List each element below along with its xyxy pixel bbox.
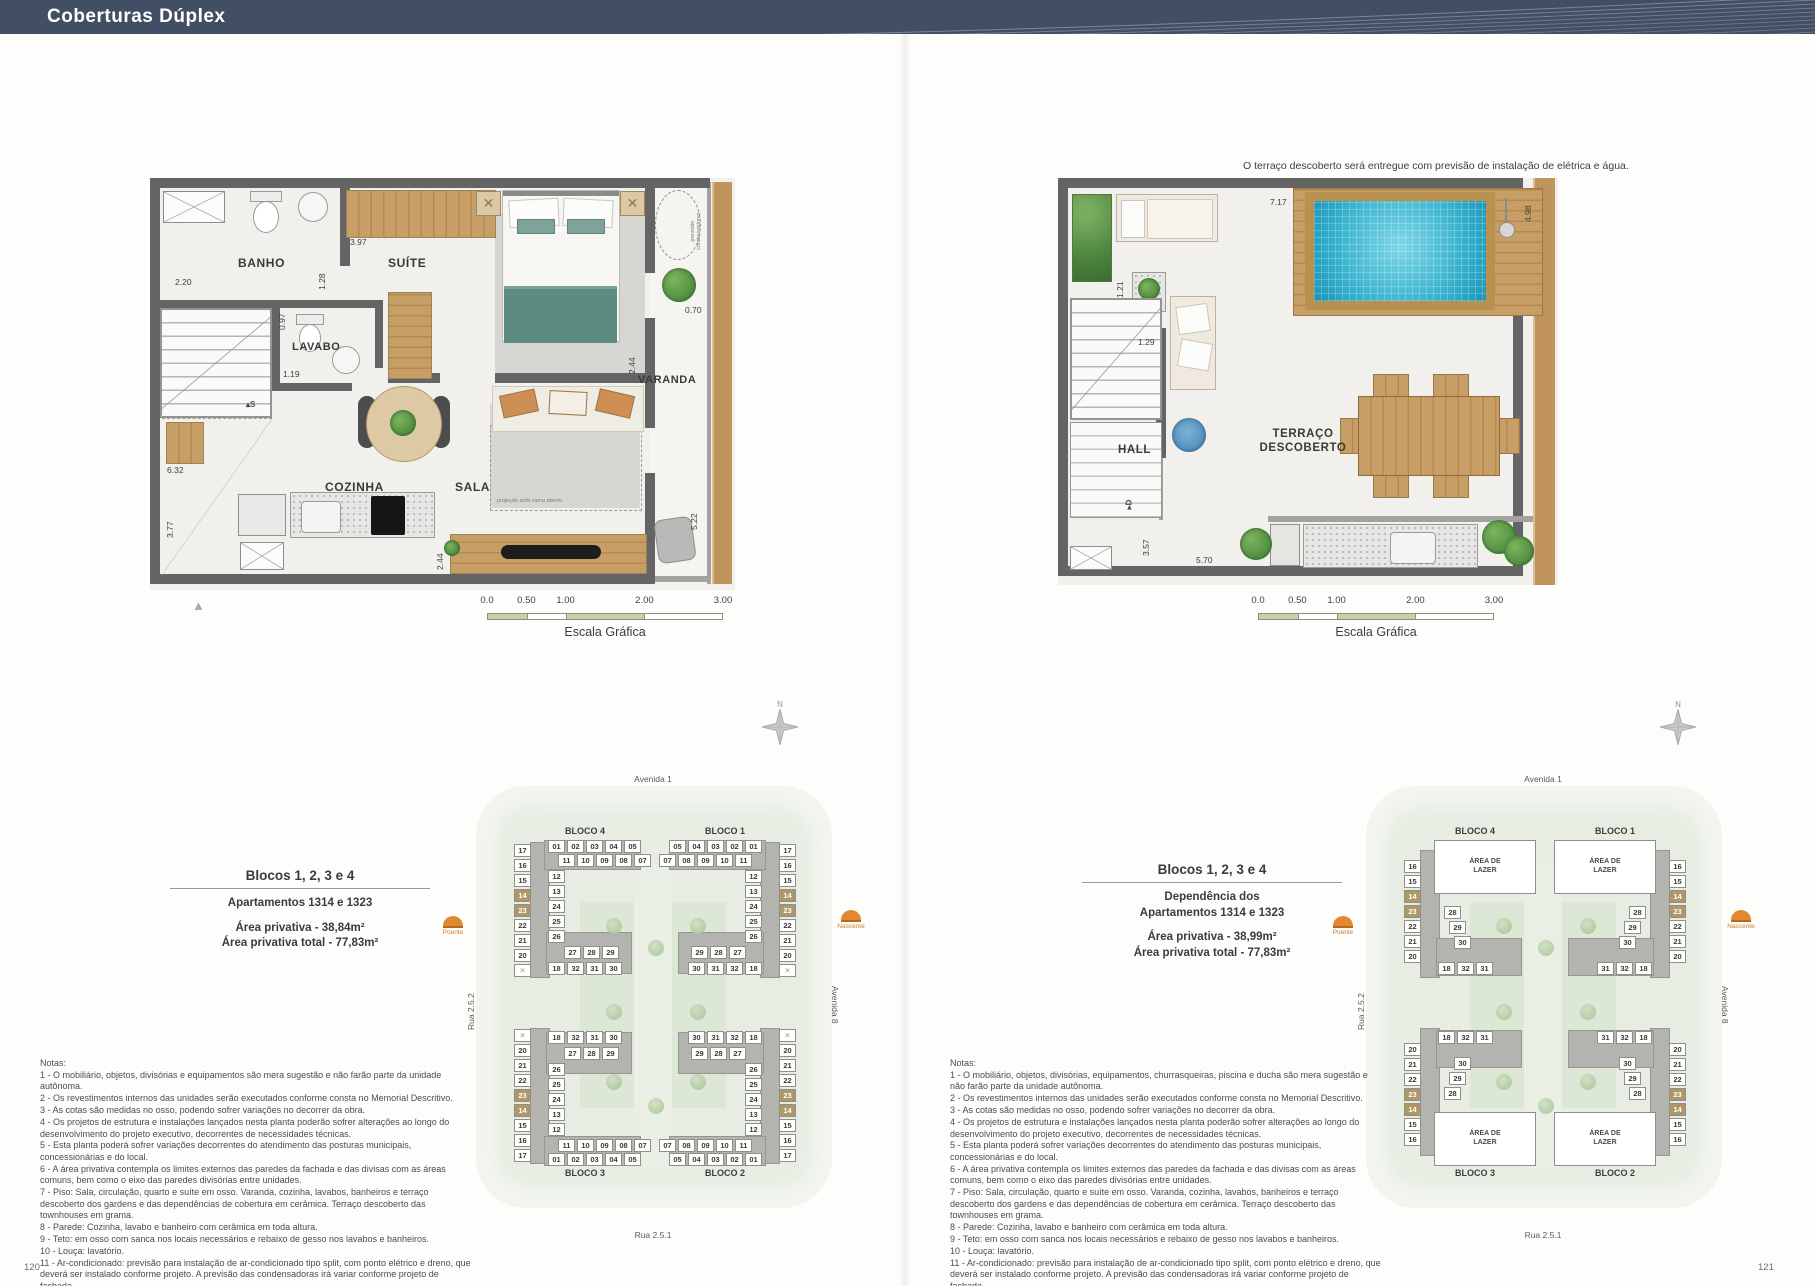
unit-31: 31 [1476, 1031, 1493, 1044]
unit-08: 08 [615, 1139, 632, 1152]
unit-11: 11 [735, 1139, 752, 1152]
street-label-left: Rua 2.5.2 [1356, 993, 1366, 1030]
bloco-4-building: ÁREA DE LAZER16151423222120282930183231 [1404, 840, 1546, 982]
shower-post-icon [1505, 198, 1507, 224]
unit-09: 09 [596, 1139, 613, 1152]
wall-left [150, 178, 160, 584]
unit-03: 03 [707, 840, 724, 853]
plant-icon [1138, 278, 1160, 300]
unit-13: 13 [548, 885, 565, 898]
unit-09: 09 [697, 854, 714, 867]
sunset-icon: Poente [1328, 916, 1358, 936]
unit-22: 22 [1404, 1073, 1421, 1086]
unit-30: 30 [1619, 936, 1636, 949]
unit-23: 23 [779, 1089, 796, 1102]
scale-tick: 3.00 [714, 595, 733, 606]
unit-24: 24 [745, 1093, 762, 1106]
street-label-right: Avenida 8 [1720, 986, 1730, 1024]
unit-18: 18 [548, 1031, 565, 1044]
scale-tick: 1.00 [556, 595, 575, 606]
unit-30: 30 [1454, 936, 1471, 949]
unit-18: 18 [1635, 962, 1652, 975]
wave-decoration [0, 0, 1815, 34]
unit-15: 15 [514, 1119, 531, 1132]
unit-14: 14 [1404, 1103, 1421, 1116]
unit-29: 29 [1624, 1072, 1641, 1085]
tree-icon [1538, 1098, 1554, 1114]
note-item: 10 - Louça: lavatório. [950, 1246, 1382, 1257]
room-label-varanda: VARANDA [638, 374, 696, 386]
note-item: 5 - Esta planta poderá sofrer variações … [950, 1140, 1382, 1163]
unit-14: 14 [514, 1104, 531, 1117]
scale-bar-caption: Escala Gráfica [1258, 625, 1494, 639]
unit-15: 15 [1404, 875, 1421, 888]
facade-strip [712, 182, 732, 584]
unit-cross: ✕ [779, 1029, 796, 1042]
ac-unit-icon: ✕ [620, 191, 645, 216]
dim: 3.57 [1142, 539, 1151, 556]
dim: 3.97 [350, 238, 367, 247]
info-line: Área privativa - 38,99m² [1082, 930, 1342, 946]
cooktop-icon [371, 496, 405, 535]
notes-right: Notas: 1 - O mobiliário, objetos, divisó… [950, 1058, 1382, 1286]
tree-icon [648, 1098, 664, 1114]
scale-bar: 0.00.501.002.003.00Escala Gráfica [487, 595, 723, 641]
dim: 2.20 [175, 278, 192, 287]
dim: 3.77 [166, 521, 175, 538]
unit-18: 18 [548, 962, 565, 975]
unit-13: 13 [548, 1108, 565, 1121]
street-label-bottom: Rua 2.5.1 [1348, 1230, 1738, 1240]
note-item: 2 - Os revestimentos internos das unidad… [40, 1093, 472, 1104]
scale-tick: 1.00 [1327, 595, 1346, 606]
dim: 4.98 [1524, 205, 1533, 222]
unit-11: 11 [735, 854, 752, 867]
unit-22: 22 [1669, 1073, 1686, 1086]
unit-28: 28 [583, 946, 600, 959]
unit-27: 27 [729, 946, 746, 959]
unit-15: 15 [514, 874, 531, 887]
scale-bar-caption: Escala Gráfica [487, 625, 723, 639]
info-line: Apartamentos 1314 e 1323 [1082, 906, 1342, 922]
unit-31: 31 [1597, 1031, 1614, 1044]
unit-14: 14 [779, 889, 796, 902]
tree-icon [1580, 918, 1596, 934]
unit-25: 25 [745, 1078, 762, 1091]
unit-info-right: Blocos 1, 2, 3 e 4 Dependência dos Apart… [1082, 862, 1342, 961]
scale-tick: 0.50 [517, 595, 536, 606]
unit-13: 13 [745, 1108, 762, 1121]
sunrise-icon: Nascente [836, 910, 866, 930]
room-label-suite: SUÍTE [388, 256, 426, 270]
unit-20: 20 [1669, 950, 1686, 963]
brochure-spread: Coberturas Dúplex ✕ ✕ [0, 0, 1815, 1286]
info-line: Apartamentos 1314 e 1323 [170, 896, 430, 912]
note-item: 7 - Piso: Sala, circulação, quarto e suí… [950, 1187, 1382, 1221]
bloco-label: BLOCO 1 [1544, 826, 1686, 836]
note-item: 4 - Os projetos de estrutura e instalaçõ… [950, 1117, 1382, 1140]
note-item: 11 - Ar-condicionado: previsão para inst… [40, 1258, 472, 1286]
unit-30: 30 [688, 962, 705, 975]
unit-20: 20 [1404, 950, 1421, 963]
note-item: 3 - As cotas são medidas no osso, podend… [40, 1105, 472, 1116]
unit-02: 02 [726, 1153, 743, 1166]
tree-icon [606, 1074, 622, 1090]
unit-20: 20 [779, 949, 796, 962]
info-line: Área privativa total - 77,83m² [170, 936, 430, 952]
unit-24: 24 [745, 900, 762, 913]
unit-07: 07 [634, 854, 651, 867]
unit-28: 28 [1629, 906, 1646, 919]
note-item: 8 - Parede: Cozinha, lavabo e banheiro c… [950, 1222, 1382, 1233]
tree-icon [1538, 940, 1554, 956]
bloco-4-building: 1716151423222120✕01020304051110090807121… [514, 840, 656, 982]
unit-08: 08 [615, 854, 632, 867]
unit-cross: ✕ [514, 964, 531, 977]
room-label-hall: HALL [1118, 444, 1151, 456]
room-label-sala: SALA [455, 480, 490, 494]
dim: 7.17 [1270, 198, 1287, 207]
tree-icon [1580, 1074, 1596, 1090]
wall-divider-2 [495, 373, 650, 383]
unit-18: 18 [745, 1031, 762, 1044]
unit-31: 31 [586, 1031, 603, 1044]
unit-22: 22 [514, 1074, 531, 1087]
room-label-terraco-2: DESCOBERTO [1241, 442, 1365, 454]
varanda-rail [707, 182, 711, 584]
unit-17: 17 [514, 1149, 531, 1162]
unit-20: 20 [779, 1044, 796, 1057]
unit-17: 17 [779, 844, 796, 857]
unit-24: 24 [548, 1093, 565, 1106]
unit-25: 25 [745, 915, 762, 928]
dim: 5.70 [1196, 556, 1213, 565]
tv-bench-icon [450, 534, 647, 574]
street-label-left: Rua 2.5.2 [466, 993, 476, 1030]
unit-10: 10 [577, 1139, 594, 1152]
bloco-2-building: ÁREA DE LAZER16151423222120282930183231 [1544, 1024, 1686, 1166]
info-line: Dependência dos [1082, 890, 1342, 906]
wardrobe-icon [346, 190, 496, 238]
tree-icon [690, 1004, 706, 1020]
dim: 2.44 [628, 357, 637, 374]
bloco-label: BLOCO 3 [1404, 1168, 1546, 1178]
scale-tick: 3.00 [1485, 595, 1504, 606]
note-item: 3 - As cotas são medidas no osso, podend… [950, 1105, 1382, 1116]
wall-bottom [150, 574, 655, 584]
area-de-lazer: ÁREA DE LAZER [1434, 840, 1536, 894]
unit-01: 01 [548, 1153, 565, 1166]
dim: 6.32 [167, 466, 184, 475]
fridge-icon [238, 494, 286, 536]
unit-22: 22 [514, 919, 531, 932]
unit-29: 29 [691, 946, 708, 959]
note-item: 9 - Teto: em osso com sanca nos locais n… [950, 1234, 1382, 1245]
sofa-icon [492, 386, 644, 432]
unit-20: 20 [514, 1044, 531, 1057]
note-item: 5 - Esta planta poderá sofrer variações … [40, 1140, 472, 1163]
unit-29: 29 [691, 1047, 708, 1060]
unit-28: 28 [583, 1047, 600, 1060]
sofa-projection-label: projeção sofá cama aberto [497, 498, 562, 504]
unit-31: 31 [586, 962, 603, 975]
plant-icon [1240, 528, 1272, 560]
unit-02: 02 [567, 1153, 584, 1166]
kitchen-sink-icon [301, 501, 341, 533]
bloco-label: BLOCO 2 [654, 1168, 796, 1178]
unit-32: 32 [1616, 1031, 1633, 1044]
sofa-icon [1170, 296, 1216, 390]
unit-17: 17 [514, 844, 531, 857]
unit-26: 26 [548, 1063, 565, 1076]
unit-29: 29 [602, 946, 619, 959]
unit-03: 03 [586, 1153, 603, 1166]
tree-icon [1496, 918, 1512, 934]
unit-05: 05 [624, 840, 641, 853]
unit-09: 09 [596, 854, 613, 867]
scale-tick: 0.0 [1251, 595, 1264, 606]
shower-icon [163, 191, 225, 223]
street-label-top: Avenida 1 [1348, 774, 1738, 784]
wall-bottom-varanda [655, 576, 710, 582]
pool-icon [1305, 192, 1495, 310]
unit-10: 10 [577, 854, 594, 867]
street-label-right: Avenida 8 [830, 986, 840, 1024]
unit-21: 21 [1404, 935, 1421, 948]
unit-32: 32 [1616, 962, 1633, 975]
unit-31: 31 [1476, 962, 1493, 975]
bloco-label: BLOCO 4 [514, 826, 656, 836]
unit-15: 15 [779, 1119, 796, 1132]
unit-17: 17 [779, 1149, 796, 1162]
unit-16: 16 [779, 1134, 796, 1147]
tree-icon [662, 268, 696, 302]
compass-icon: N [1656, 700, 1700, 758]
bloco-3-building: ÁREA DE LAZER16151423222120282930183231 [1404, 1024, 1546, 1166]
scale-bar-rule [487, 613, 723, 620]
unit-15: 15 [1669, 875, 1686, 888]
unit-16: 16 [1404, 1133, 1421, 1146]
tree-icon [1580, 1004, 1596, 1020]
scale-tick: 2.00 [1406, 595, 1425, 606]
tree-icon [690, 1074, 706, 1090]
sunrise-icon: Nascente [1726, 910, 1756, 930]
page-gutter [899, 34, 911, 1286]
service-box-icon [240, 542, 284, 570]
unit-28: 28 [1444, 906, 1461, 919]
wall-lavabo-right [375, 308, 383, 368]
unit-12: 12 [745, 870, 762, 883]
tree-icon [1496, 1004, 1512, 1020]
lounge-chair-icon [1116, 194, 1218, 242]
unit-05: 05 [669, 1153, 686, 1166]
service-box-icon [1070, 546, 1112, 570]
unit-info-left: Blocos 1, 2, 3 e 4 Apartamentos 1314 e 1… [170, 868, 430, 952]
wall-left [1058, 178, 1068, 576]
note-item: 1 - O mobiliário, objetos, divisórias, e… [950, 1070, 1382, 1093]
dim: 5.22 [690, 513, 699, 530]
tv-icon [501, 545, 601, 559]
scale-bar: 0.00.501.002.003.00Escala Gráfica [1258, 595, 1494, 641]
note-item: 8 - Parede: Cozinha, lavabo e banheiro c… [40, 1222, 472, 1233]
unit-32: 32 [1457, 962, 1474, 975]
stair-direction-marker: ▸D [1124, 500, 1133, 510]
bloco-label: BLOCO 3 [514, 1168, 656, 1178]
info-line: Área privativa - 38,84m² [170, 921, 430, 937]
note-item: 6 - A área privativa contempla os limite… [40, 1164, 472, 1187]
unit-12: 12 [745, 1123, 762, 1136]
unit-03: 03 [586, 840, 603, 853]
wall-banho-bottom [160, 300, 383, 308]
unit-10: 10 [716, 1139, 733, 1152]
bloco-label: BLOCO 2 [1544, 1168, 1686, 1178]
stairs-down [1070, 298, 1162, 420]
unit-27: 27 [564, 1047, 581, 1060]
note-item: 11 - Ar-condicionado: previsão para inst… [950, 1258, 1382, 1286]
unit-05: 05 [669, 840, 686, 853]
unit-21: 21 [1669, 935, 1686, 948]
unit-14: 14 [1669, 890, 1686, 903]
unit-30: 30 [1619, 1057, 1636, 1070]
unit-12: 12 [548, 1123, 565, 1136]
sink-icon [298, 192, 328, 222]
unit-28: 28 [710, 946, 727, 959]
unit-25: 25 [548, 915, 565, 928]
area-de-lazer: ÁREA DE LAZER [1554, 1112, 1656, 1166]
floorplan-lower-duplex: ✕ ✕ ▴S proje [150, 178, 735, 590]
page-title: Coberturas Dúplex [47, 6, 225, 28]
scale-tick: 0.0 [480, 595, 493, 606]
unit-28: 28 [1629, 1087, 1646, 1100]
unit-01: 01 [548, 840, 565, 853]
plant-icon [444, 540, 460, 556]
dim: 2.44 [436, 553, 445, 570]
unit-23: 23 [1404, 1088, 1421, 1101]
cabinet-icon [166, 422, 204, 464]
unit-30: 30 [605, 962, 622, 975]
unit-32: 32 [1457, 1031, 1474, 1044]
unit-01: 01 [745, 1153, 762, 1166]
unit-14: 14 [1669, 1103, 1686, 1116]
unit-23: 23 [1404, 905, 1421, 918]
tree-icon [690, 918, 706, 934]
info-line: Área privativa total - 77,83m² [1082, 946, 1342, 962]
unit-15: 15 [779, 874, 796, 887]
note-item: 7 - Piso: Sala, circulação, quarto e suí… [40, 1187, 472, 1221]
unit-30: 30 [1454, 1057, 1471, 1070]
unit-21: 21 [1669, 1058, 1686, 1071]
room-label-cozinha: COZINHA [325, 480, 384, 494]
unit-02: 02 [726, 840, 743, 853]
unit-28: 28 [1444, 1087, 1461, 1100]
cabinet-icon [1270, 524, 1300, 566]
unit-20: 20 [1404, 1043, 1421, 1056]
dim: 1.28 [318, 273, 327, 290]
unit-08: 08 [678, 1139, 695, 1152]
unit-07: 07 [659, 854, 676, 867]
page-header: Coberturas Dúplex [0, 0, 1815, 34]
note-item: 1 - O mobiliário, objetos, divisórias e … [40, 1070, 472, 1093]
stair-direction-marker: ▴S [246, 400, 255, 409]
unit-31: 31 [707, 1031, 724, 1044]
dim: 0.97 [278, 313, 287, 330]
bed-icon [502, 190, 620, 342]
floorplan-roof-terrace: ▸D HALL TERRAÇO DESCOBERTO 7.17 4.98 1.2… [1058, 178, 1558, 585]
unit-cross: ✕ [514, 1029, 531, 1042]
info-title: Blocos 1, 2, 3 e 4 [1082, 862, 1342, 883]
page-number-left: 120 [24, 1262, 40, 1273]
kitchen-counter [290, 492, 435, 538]
dim: 1.29 [1138, 338, 1155, 347]
unit-11: 11 [558, 854, 575, 867]
shower-head-icon [1499, 222, 1515, 238]
unit-14: 14 [779, 1104, 796, 1117]
unit-18: 18 [745, 962, 762, 975]
unit-23: 23 [1669, 905, 1686, 918]
tree-icon [1496, 1074, 1512, 1090]
siteplan-right: Avenida 1 Rua 2.5.2 Avenida 8 Rua 2.5.1 … [1348, 768, 1738, 1250]
unit-16: 16 [779, 859, 796, 872]
note-item: 4 - Os projetos de estrutura e instalaçõ… [40, 1117, 472, 1140]
unit-14: 14 [1404, 890, 1421, 903]
unit-22: 22 [1404, 920, 1421, 933]
note-item: 9 - Teto: em osso com sanca nos locais n… [40, 1234, 472, 1245]
bloco-label: BLOCO 4 [1404, 826, 1546, 836]
unit-28: 28 [710, 1047, 727, 1060]
bbq-counter [1303, 524, 1478, 568]
unit-04: 04 [605, 1153, 622, 1166]
bloco-1-building: 1716151423222120✕01020304051110090807121… [654, 840, 796, 982]
scale-tick: 2.00 [635, 595, 654, 606]
street-label-bottom: Rua 2.5.1 [458, 1230, 848, 1240]
unit-05: 05 [624, 1153, 641, 1166]
room-label-lavabo: LAVABO [292, 341, 340, 353]
condenser-label: previsão condensadores [690, 212, 702, 250]
unit-27: 27 [564, 946, 581, 959]
area-de-lazer: ÁREA DE LAZER [1554, 840, 1656, 894]
terrace-caption: O terraço descoberto será entregue com p… [1243, 160, 1629, 172]
unit-13: 13 [745, 885, 762, 898]
bloco-label: BLOCO 1 [654, 826, 796, 836]
unit-31: 31 [707, 962, 724, 975]
tree-icon [606, 1004, 622, 1020]
unit-12: 12 [548, 870, 565, 883]
unit-10: 10 [716, 854, 733, 867]
unit-08: 08 [678, 854, 695, 867]
scale-tick: 0.50 [1288, 595, 1307, 606]
note-item: 10 - Louça: lavatório. [40, 1246, 472, 1257]
unit-14: 14 [514, 889, 531, 902]
notes-title: Notas: [40, 1058, 472, 1069]
wall-top [150, 178, 710, 188]
unit-23: 23 [514, 1089, 531, 1102]
unit-02: 02 [567, 840, 584, 853]
dining-table-icon [1358, 396, 1500, 476]
unit-18: 18 [1438, 962, 1455, 975]
sink-icon [1390, 532, 1436, 564]
sunset-icon: Poente [438, 916, 468, 936]
notes-list: 1 - O mobiliário, objetos, divisórias e … [40, 1070, 472, 1286]
unit-cross: ✕ [779, 964, 796, 977]
unit-09: 09 [697, 1139, 714, 1152]
unit-22: 22 [1669, 920, 1686, 933]
unit-16: 16 [1404, 860, 1421, 873]
unit-29: 29 [1449, 1072, 1466, 1085]
unit-21: 21 [514, 934, 531, 947]
planter-icon [1072, 194, 1112, 282]
notes-title: Notas: [950, 1058, 1382, 1069]
unit-16: 16 [1669, 1133, 1686, 1146]
